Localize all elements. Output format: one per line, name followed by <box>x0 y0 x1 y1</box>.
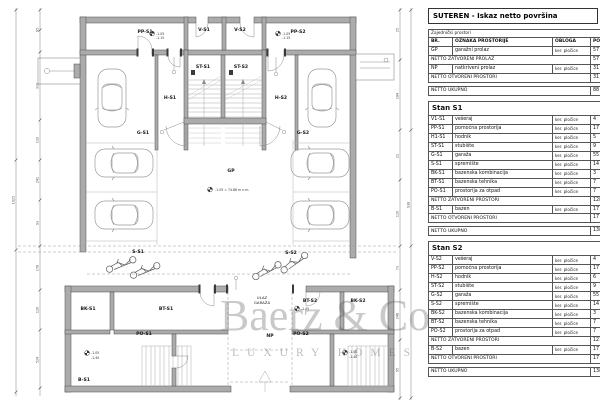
plan-label-v-s1: V-S1 <box>198 27 210 33</box>
table-cell: bazenska kombinacija <box>453 169 553 178</box>
table-cell: G-S2 <box>429 292 453 301</box>
table-cell: OBLOGA <box>553 38 591 47</box>
table-cell: vešeraj <box>453 256 553 265</box>
table-cell: prostorija za otpad <box>453 328 553 337</box>
table-cell: spremište <box>453 160 553 169</box>
table-cell: 55 <box>591 292 600 301</box>
table-cell: NETTO OTVORENI PROSTORI <box>429 214 591 223</box>
table-cell: V-S2 <box>429 256 453 265</box>
plan-label-gp: GP <box>227 168 235 174</box>
table-cell: 9 <box>591 283 600 292</box>
table-cell: 138 <box>591 368 600 377</box>
plan-label-h-s2: H-S2 <box>275 95 287 101</box>
table-cell: V1-S1 <box>429 115 453 124</box>
table-cell: 7 <box>591 187 600 196</box>
table-row: Stan S2 <box>429 242 600 256</box>
table-row: NETTO ZATVORENI PROLAZ57 <box>429 55 600 64</box>
plan-label-h-s1: H-S1 <box>164 95 176 101</box>
lower-left-stairs <box>142 346 191 390</box>
table-cell: 128 <box>591 196 600 205</box>
table-cell: pomoćna prostorija <box>453 265 553 274</box>
table-row: BT-S1bazenska tehnikaker. pločice7 <box>429 178 600 187</box>
table-cell: 14 <box>591 301 600 310</box>
table-cell: PP-S2 <box>429 265 453 274</box>
table-row: ST-S1stubišteker. pločice9 <box>429 142 600 151</box>
dimension-text: 524 <box>36 357 40 363</box>
table-cell: garaža <box>453 151 553 160</box>
table-cell: Zajednički prostori <box>429 30 600 38</box>
plan-label-g-s1: G-S1 <box>137 130 149 136</box>
table-cell: ker. pločice <box>553 160 591 169</box>
table-cell: pomoćna prostorija <box>453 124 553 133</box>
table-cell: ker. pločice <box>553 64 591 73</box>
table-cell: PO-S2 <box>429 328 453 337</box>
table-row: BK-S2bazenska kombinacijaker. pločice3 <box>429 310 600 319</box>
table-cell: NETTO ZATVORENI PROLAZ <box>429 55 591 64</box>
floor-plan: PP-S1V-S1V-S2PP-S2ST-S1ST-S2H-S1H-S2G-S1… <box>0 0 424 400</box>
table-cell: OZNAKA PROSTORIJE <box>453 38 553 47</box>
plan-label-s-s1: S-S1 <box>132 249 144 255</box>
table-row: NETTO OTVORENI PROSTORI31 <box>429 73 600 82</box>
table-cell: 17 <box>591 346 600 355</box>
table-row: GPgaražni prolazker. pločice57 <box>429 46 600 55</box>
table-row: NETTO ZATVORENI PROSTORI121 <box>429 337 600 346</box>
table-cell: garažni prolaz <box>453 46 553 55</box>
table-row: PP-S1pomoćna prostorijaker. pločice17 <box>429 124 600 133</box>
table-cell: ker. pločice <box>553 151 591 160</box>
table-cell: ker. pločice <box>553 265 591 274</box>
table-cell: 31 <box>591 64 600 73</box>
table-cell: 7 <box>591 328 600 337</box>
elevation-text: -1.40 <box>349 355 357 359</box>
table-row: NETTO OTVORENI PROSTORI17 <box>429 214 600 223</box>
entrance-arrow <box>259 371 271 392</box>
table-row: NETTO UKUPNO138 <box>429 368 600 377</box>
plan-label-st-s1: ST-S1 <box>196 64 210 70</box>
table-cell: spremište <box>453 301 553 310</box>
plan-label-g-s2: G-S2 <box>297 130 309 136</box>
table-cell: prostorija za otpad <box>453 187 553 196</box>
table-cell: NETTO UKUPNO <box>429 368 591 377</box>
table-row: Stan S1 <box>429 101 600 115</box>
table-cell: ST-S2 <box>429 283 453 292</box>
table-cell: ker. pločice <box>553 115 591 124</box>
table-cell: ker. pločice <box>553 124 591 133</box>
plan-label-bt-s1: BT-S1 <box>159 306 173 312</box>
table-cell: ker. pločice <box>553 346 591 355</box>
table-cell: bazen <box>453 205 553 214</box>
dimension-text: 93 <box>36 221 40 225</box>
table-cell: 9 <box>591 142 600 151</box>
table-cell: 55 <box>591 151 600 160</box>
table-cell: ST-S1 <box>429 142 453 151</box>
table-cell: NETTO UKUPNO <box>429 86 591 95</box>
table-cell: ker. pločice <box>553 142 591 151</box>
table-cell: ker. pločice <box>553 169 591 178</box>
table-cell: NETTO ZATVORENI PROSTORI <box>429 337 591 346</box>
table-cell: BR. <box>429 38 453 47</box>
table-cell: S-S2 <box>429 301 453 310</box>
dimension-text: 25 <box>396 28 400 32</box>
table-cell: stubište <box>453 142 553 151</box>
table-cell: BK-S2 <box>429 310 453 319</box>
table-cell: ker. pločice <box>553 256 591 265</box>
table-cell: NETTO UKUPNO <box>429 227 591 236</box>
table-cell: natkriveni prolaz <box>453 64 553 73</box>
stan-s1-table: Stan S1V1-S1vešerajker. pločice4PP-S1pom… <box>428 101 600 237</box>
elevation-text: -1.15 <box>156 36 164 40</box>
table-cell: 14 <box>591 160 600 169</box>
table-row: B-S2bazenker. pločice17 <box>429 346 600 355</box>
floor-plan-drawing: PP-S1V-S1V-S2PP-S2ST-S1ST-S2H-S1H-S2G-S1… <box>0 0 424 400</box>
table-row: NETTO OTVORENI PROSTORI17 <box>429 355 600 364</box>
dimension-text: 120 <box>36 307 40 313</box>
table-cell: ker. pločice <box>553 328 591 337</box>
table-cell: NP <box>429 64 453 73</box>
table-row: NPnatkriveni prolazker. pločice31 <box>429 64 600 73</box>
table-row: V1-S1vešerajker. pločice4 <box>429 115 600 124</box>
table-cell: stubište <box>453 283 553 292</box>
table-cell: 17 <box>591 124 600 133</box>
table-row: G-S2garažaker. pločice55 <box>429 292 600 301</box>
plan-label-v-s2: V-S2 <box>234 27 246 33</box>
plan-label-po-s1: PO-S1 <box>136 331 152 337</box>
table-row: G-S1garažaker. pločice55 <box>429 151 600 160</box>
plan-label-pp-s1: PP-S1 <box>137 29 152 35</box>
table-cell: ker. pločice <box>553 310 591 319</box>
plan-label-s-s2: S-S2 <box>285 250 297 256</box>
walls <box>65 17 394 392</box>
elevation-text: -1.05 <box>91 351 99 355</box>
table-cell: NETTO ZATVORENI PROSTORI <box>429 196 591 205</box>
table-cell: ker. pločice <box>553 46 591 55</box>
dimension-text: 95 <box>396 368 400 372</box>
table-cell: 7 <box>591 178 600 187</box>
table-cell: bazenska tehnika <box>453 178 553 187</box>
dimension-text: 248 <box>396 313 400 319</box>
common-areas-table: Zajednički prostoriBR.OZNAKA PROSTORIJEO… <box>428 29 600 96</box>
table-cell: 57 <box>591 46 600 55</box>
table-cell: GP <box>429 46 453 55</box>
table-cell: ker. pločice <box>553 133 591 142</box>
table-cell: NETTO OTVORENI PROSTORI <box>429 355 591 364</box>
table-cell: PO-S1 <box>429 187 453 196</box>
table-row: NETTO UKUPNO88 <box>429 86 600 95</box>
table-cell: ker. pločice <box>553 301 591 310</box>
area-table-panel: SUTEREN - Iskaz netto površina Zajedničk… <box>428 8 600 377</box>
table-cell: 57 <box>591 55 600 64</box>
dimension-text: 95 <box>36 28 40 32</box>
table-cell: H1-S1 <box>429 133 453 142</box>
plan-label-bt-s2: BT-S2 <box>303 298 317 304</box>
table-cell: bazenska tehnika <box>453 319 553 328</box>
table-cell: BK-S1 <box>429 169 453 178</box>
plan-label-bk-s1: BK-S1 <box>80 306 95 312</box>
table-cell: ker. pločice <box>553 292 591 301</box>
dimension-text: 73 <box>396 266 400 270</box>
table-cell: G-S1 <box>429 151 453 160</box>
dimension-text: 241 <box>36 177 40 183</box>
dimension-text: 938 <box>407 202 411 208</box>
table-cell: 3 <box>591 310 600 319</box>
elevation-text: -1.05 = 74.86 m n.m. <box>215 188 249 192</box>
table-cell: 17 <box>591 265 600 274</box>
table-row: V-S2vešerajker. pločice4 <box>429 256 600 265</box>
dimension-text: 1025 <box>12 196 16 204</box>
table-cell: ker. pločice <box>553 274 591 283</box>
table-row: PP-S2pomoćna prostorijaker. pločice17 <box>429 265 600 274</box>
table-cell: B-S1 <box>429 205 453 214</box>
dimension-text: 110 <box>396 211 400 217</box>
table-cell: BT-S2 <box>429 319 453 328</box>
table-cell: 7 <box>591 319 600 328</box>
plan-label-b-s1: B-S1 <box>78 377 90 383</box>
screenshot-root: PP-S1V-S1V-S2PP-S2ST-S1ST-S2H-S1H-S2G-S1… <box>0 0 600 400</box>
table-cell: vešeraj <box>453 115 553 124</box>
table-cell: ker. pločice <box>553 319 591 328</box>
table-cell: 4 <box>591 256 600 265</box>
table-cell: 17 <box>591 205 600 214</box>
table-row: NETTO UKUPNO138 <box>429 227 600 236</box>
table-cell: 3 <box>591 169 600 178</box>
doors <box>137 23 321 368</box>
table-row: B-S1bazenker. pločice17 <box>429 205 600 214</box>
plan-label-pp-s2: PP-S2 <box>290 29 305 35</box>
plan-label-st-s2: ST-S2 <box>234 64 248 70</box>
table-cell: 5 <box>591 133 600 142</box>
table-cell: garaža <box>453 292 553 301</box>
table-cell: 121 <box>591 337 600 346</box>
table-row: BK-S1bazenska kombinacijaker. pločice3 <box>429 169 600 178</box>
table-title: SUTEREN - Iskaz netto površina <box>428 8 598 24</box>
table-cell: ker. pločice <box>553 205 591 214</box>
table-row: ST-S2stubišteker. pločice9 <box>429 283 600 292</box>
table-row: Zajednički prostori <box>429 30 600 38</box>
table-cell: 4 <box>591 115 600 124</box>
table-row: PO-S1prostorija za otpadker. pločice7 <box>429 187 600 196</box>
dimension-text: 184 <box>396 93 400 99</box>
table-row: S-S1spremišteker. pločice14 <box>429 160 600 169</box>
table-cell: H-S2 <box>429 274 453 283</box>
plan-label-np: NP <box>266 333 274 339</box>
elevation-text: -1.15 <box>282 36 290 40</box>
table-cell: Stan S2 <box>429 242 600 256</box>
table-cell: B-S2 <box>429 346 453 355</box>
table-cell: 6 <box>591 274 600 283</box>
table-cell: 17 <box>591 214 600 223</box>
stan-s2-table: Stan S2V-S2vešerajker. pločice4PP-S2pomo… <box>428 241 600 377</box>
table-cell: hodnik <box>453 133 553 142</box>
elevation-text: -1.40 <box>91 356 99 360</box>
table-row: H1-S1hodnikker. pločice5 <box>429 133 600 142</box>
dimension-text: 21 <box>396 154 400 158</box>
table-cell: hodnik <box>453 274 553 283</box>
table-cell: ker. pločice <box>553 178 591 187</box>
table-cell: 88 <box>591 86 600 95</box>
table-cell: Stan S1 <box>429 101 600 115</box>
dimension-text: 178 <box>36 265 40 271</box>
plan-label-po-s2: PO-S2 <box>293 331 309 337</box>
table-row: BR.OZNAKA PROSTORIJEOBLOGAPOVRŠINA <box>429 38 600 47</box>
table-row: PO-S2prostorija za otpadker. pločice7 <box>429 328 600 337</box>
plan-label-ulaz-line2: GARAŽA <box>254 300 271 305</box>
table-cell: ker. pločice <box>553 187 591 196</box>
table-row: S-S2spremišteker. pločice14 <box>429 301 600 310</box>
elevation-text: -1.05 <box>301 307 309 311</box>
table-cell: NETTO OTVORENI PROSTORI <box>429 73 591 82</box>
table-cell: ker. pločice <box>553 283 591 292</box>
dimension-text: 110 <box>36 137 40 143</box>
table-row: NETTO ZATVORENI PROSTORI128 <box>429 196 600 205</box>
table-row: BT-S2bazenska tehnikaker. pločice7 <box>429 319 600 328</box>
light-wells <box>38 54 394 84</box>
table-cell: bazen <box>453 346 553 355</box>
table-cell: PP-S1 <box>429 124 453 133</box>
table-cell: S-S1 <box>429 160 453 169</box>
table-cell: 31 <box>591 73 600 82</box>
dimension-text: 310 <box>36 83 40 89</box>
table-cell: bazenska kombinacija <box>453 310 553 319</box>
elevation-text: -1.05 <box>349 350 357 354</box>
table-cell: 138 <box>591 227 600 236</box>
table-cell: BT-S1 <box>429 178 453 187</box>
table-row: H-S2hodnikker. pločice6 <box>429 274 600 283</box>
table-cell: POVRŠINA <box>591 38 600 47</box>
table-cell: 17 <box>591 355 600 364</box>
plan-label-bk-s2: BK-S2 <box>350 298 365 304</box>
